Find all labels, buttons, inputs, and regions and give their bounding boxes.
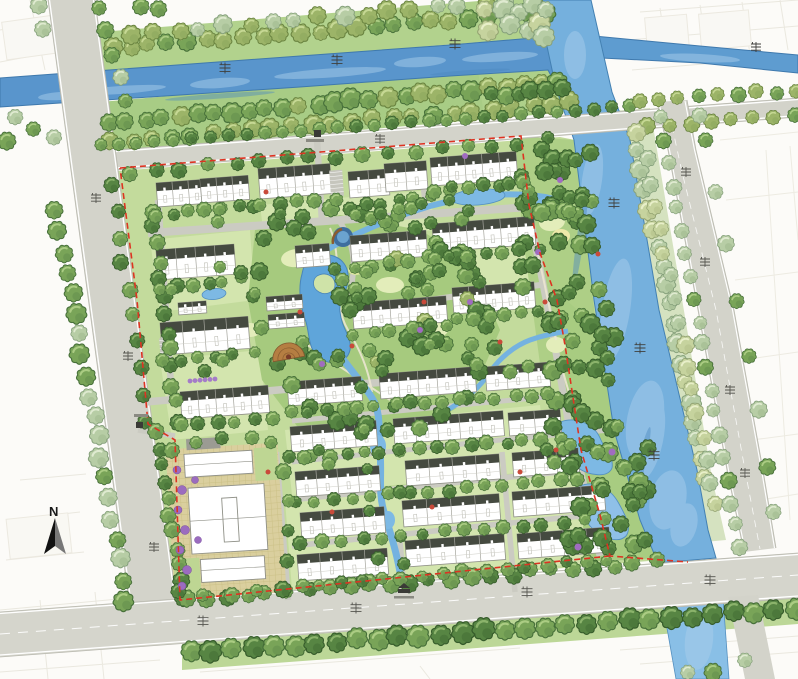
svg-text:N: N	[49, 504, 58, 519]
